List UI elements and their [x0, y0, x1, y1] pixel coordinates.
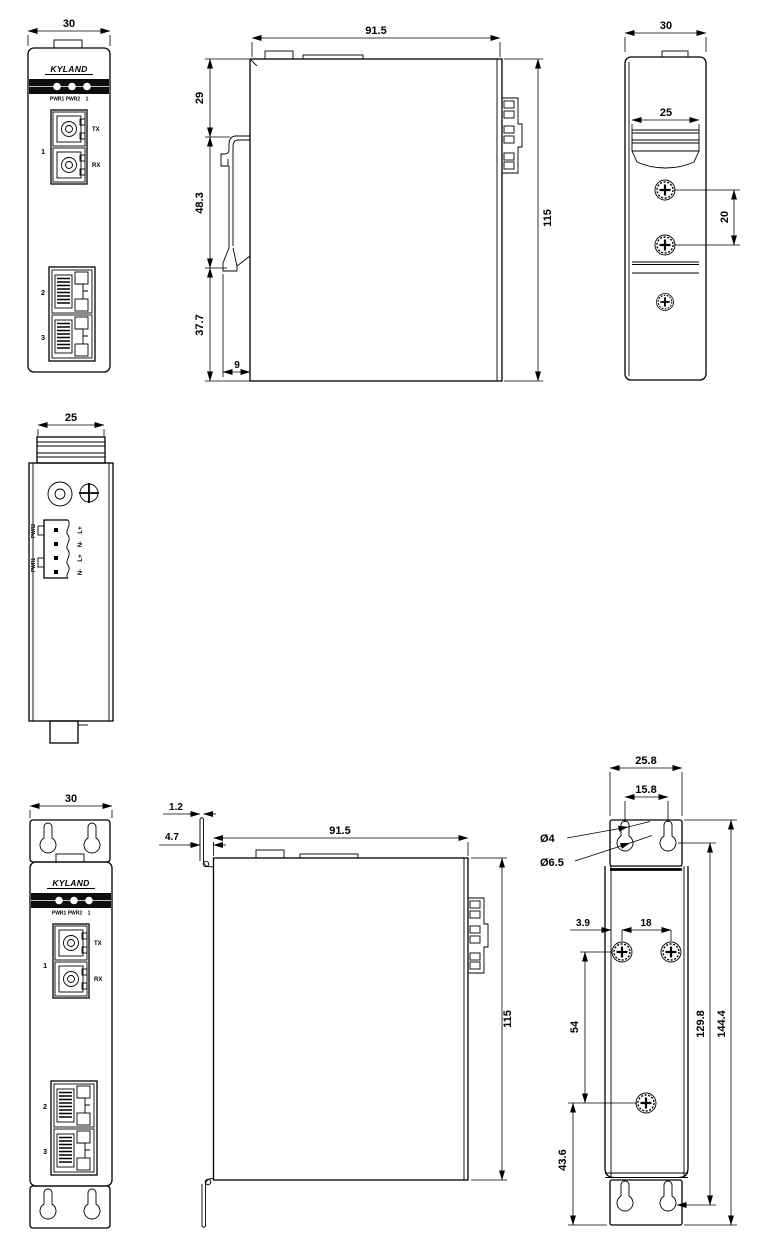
terminal-label-4: N-	[78, 569, 84, 575]
view-side-wall: 1.2 4.7 91.5 115	[159, 802, 514, 1227]
dim-dia-large: Ø6.5	[540, 857, 564, 869]
dim-screw-gap-v: 54	[569, 1020, 581, 1033]
dim-plate-height: 144.4	[716, 1009, 728, 1037]
dimension-drawing-page: KYLAND PWR1 PWR2 1 1 TX RX 2 3 30	[0, 0, 776, 1250]
view-rear-wall: 25.8 15.8 Ø4 Ø6.5 3.9 18 54 129.8	[540, 755, 737, 1225]
dim-clip-width: 25	[65, 412, 77, 424]
dim-rail-width: 25	[660, 107, 672, 119]
dim-plate-offset: 4.7	[165, 832, 179, 843]
earth-screw-icon	[79, 483, 99, 503]
dim-seg-top: 29	[194, 92, 206, 104]
dim-clip-depth: 9	[234, 360, 240, 371]
rear-connector-comb	[502, 98, 522, 173]
dim-side-wall-width: 91.5	[329, 825, 350, 837]
view-top: 25 PWR2 PWR1 L+ N- L+ N-	[29, 412, 113, 743]
dim-screw-edge: 3.9	[576, 918, 590, 929]
dim-side-height: 115	[542, 209, 554, 227]
dim-side-width: 91.5	[365, 25, 386, 37]
rear-connector-comb	[468, 898, 488, 973]
dim-plate-width: 25.8	[635, 755, 656, 767]
view-side-din: 91.5 29 48.3 37.7 9 115	[194, 25, 554, 381]
dim-rear-width: 30	[660, 20, 672, 32]
pwr2-label: PWR2	[31, 524, 37, 539]
drawing-canvas: KYLAND PWR1 PWR2 1 1 TX RX 2 3 30	[0, 0, 776, 1250]
view-front-din: 30	[28, 18, 110, 372]
dims-side-din: 91.5 29 48.3 37.7 9 115	[194, 25, 554, 381]
terminal-label-3: L+	[78, 554, 84, 562]
dim-keyhole-gap: 15.8	[635, 784, 656, 796]
dim-plate-thickness: 1.2	[169, 802, 183, 813]
terminal-label-2: N-	[78, 541, 84, 547]
wall-plate-edge	[200, 818, 214, 1228]
dims-rear-din: 20	[674, 190, 740, 245]
dim-front-width: 30	[63, 18, 75, 30]
dim-screw-gap-h: 18	[640, 918, 652, 929]
dim-seg-bot: 37.7	[194, 314, 206, 335]
dim-keyhole-span: 129.8	[695, 1010, 707, 1038]
dims-rear-wall-screws: 3.9 18 54	[568, 918, 671, 1103]
dims-rear-wall-height: 129.8 144.4 43.6	[557, 820, 737, 1225]
din-clip-top	[37, 437, 105, 463]
dim-side-wall-height: 115	[502, 1010, 514, 1028]
dim-bottom-offset: 43.6	[557, 1149, 569, 1170]
dim-dia-small: Ø4	[540, 833, 556, 845]
view-front-wall: 30	[30, 793, 112, 1228]
view-rear-din: 30 25 20	[625, 20, 740, 380]
dims-side-wall: 1.2 4.7 91.5 115	[159, 802, 514, 1180]
pwr1-label: PWR1	[31, 558, 37, 573]
din-clip-profile	[221, 136, 250, 271]
body-rear-wall	[605, 866, 688, 1178]
dim-screw-gap: 20	[719, 211, 731, 223]
power-terminal-block: PWR2 PWR1 L+ N- L+ N-	[31, 520, 84, 578]
ground-terminal-icon	[48, 482, 72, 506]
dim-front-wall-width: 30	[65, 793, 77, 805]
dim-seg-mid: 48.3	[194, 192, 206, 213]
dims-rear-wall-top: 25.8 15.8 Ø4 Ø6.5	[540, 755, 682, 869]
terminal-label-1: L+	[78, 526, 84, 534]
